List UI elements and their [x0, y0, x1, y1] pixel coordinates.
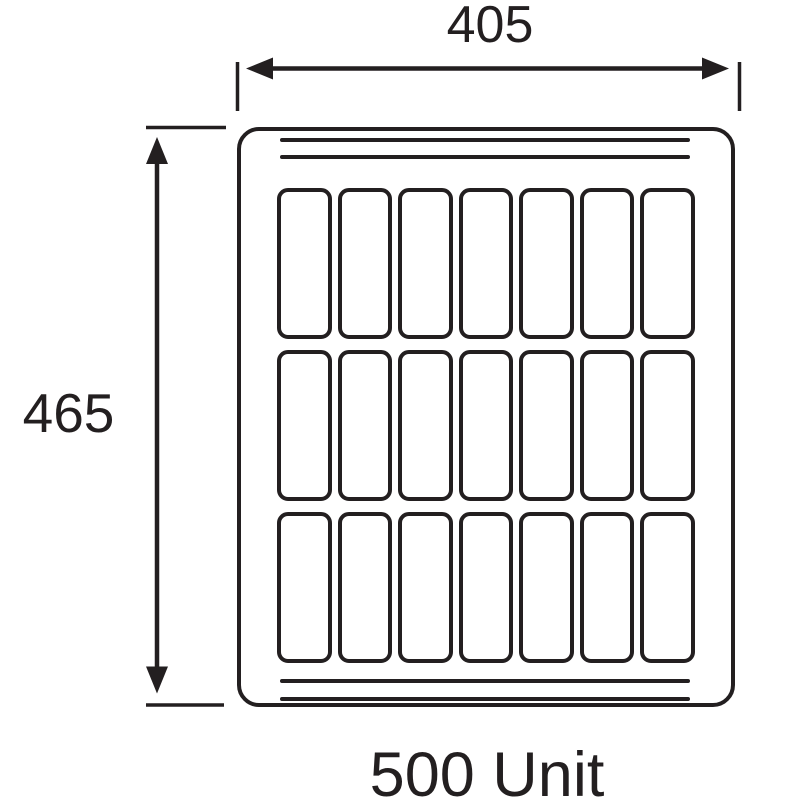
diagram-canvas: 405 465 500 Unit: [0, 0, 800, 800]
arrowhead-right-icon: [702, 58, 729, 80]
unit-caption: 500 Unit: [287, 744, 687, 800]
top-bar-line: [280, 155, 690, 159]
panel-cell: [519, 350, 574, 501]
panel-cell: [398, 512, 453, 663]
panel-cell: [277, 188, 332, 339]
panel-cell: [338, 512, 393, 663]
panel-cell: [459, 188, 514, 339]
panel-cell: [580, 188, 635, 339]
panel-cell: [640, 188, 695, 339]
panel-cell: [519, 512, 574, 663]
height-dimension: [146, 128, 226, 706]
panel-cell: [459, 350, 514, 501]
cell-grid: [277, 188, 695, 663]
width-dimension: [238, 58, 740, 112]
panel-cell: [277, 512, 332, 663]
panel-cell: [580, 350, 635, 501]
arrowhead-up-icon: [146, 137, 168, 164]
panel-cell: [338, 188, 393, 339]
panel-cell: [640, 350, 695, 501]
arrowhead-down-icon: [146, 667, 168, 694]
panel-cell: [459, 512, 514, 663]
panel-cell: [519, 188, 574, 339]
panel-cell: [277, 350, 332, 501]
panel-cell: [398, 188, 453, 339]
bottom-bar-line: [280, 679, 690, 683]
panel-cell: [580, 512, 635, 663]
panel-outline: [237, 127, 735, 707]
arrowhead-left-icon: [246, 58, 273, 80]
panel-cell: [338, 350, 393, 501]
panel-cell: [398, 350, 453, 501]
bottom-bar-line: [280, 697, 690, 701]
panel-cell: [640, 512, 695, 663]
top-bar-line: [280, 138, 690, 142]
